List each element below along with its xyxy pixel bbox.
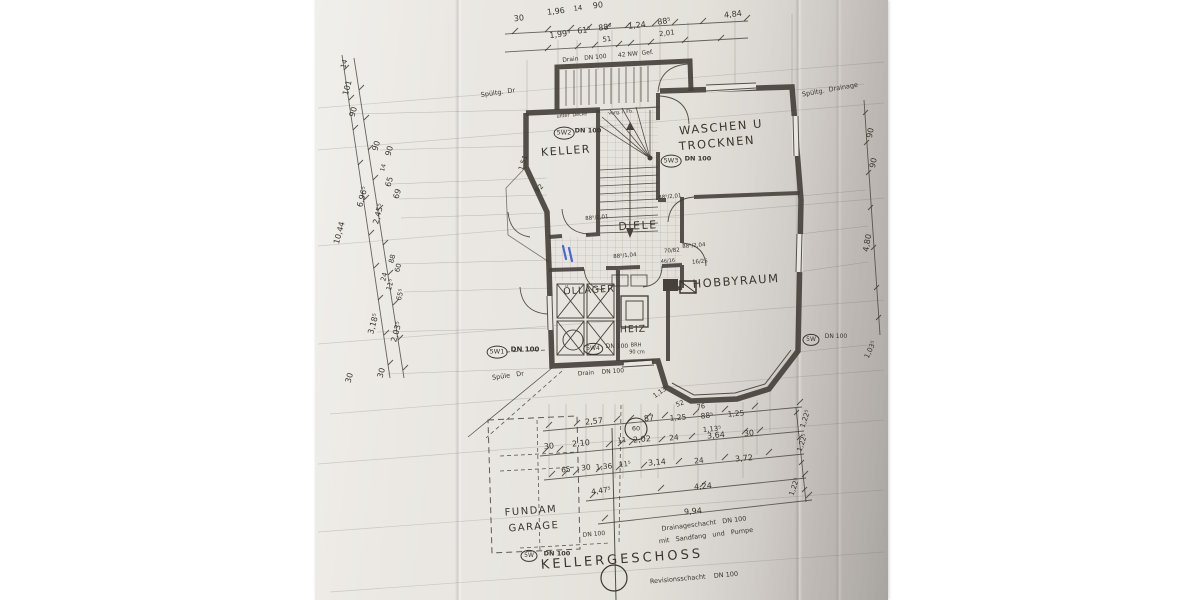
oil-tanks [557, 284, 614, 355]
photo-of-basement-floor-plan: KELLERGESCHOSSKELLERWASCHEN UTROCKNENDIE… [0, 0, 1200, 600]
drain-lines [468, 350, 647, 600]
floor-plan-drawing [0, 0, 1200, 600]
tiled-floor [549, 109, 682, 281]
boiler [621, 296, 648, 327]
bottom-dimension-chains [540, 392, 812, 524]
right-dimension-chain [794, 84, 881, 502]
photographed-floor-plan-page: { "colors": { "paper": "#e9e6e1", "paper… [0, 0, 1200, 600]
chimney-blocks [663, 279, 696, 293]
